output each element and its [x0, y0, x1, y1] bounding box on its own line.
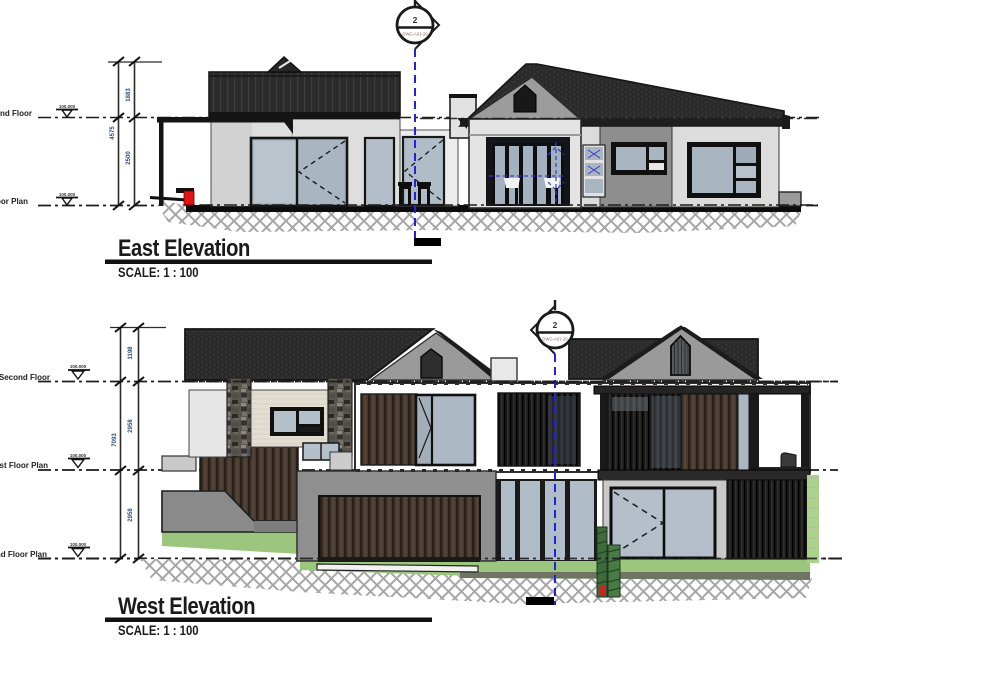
svg-text:1198: 1198 — [128, 346, 134, 360]
svg-text:100.000: 100.000 — [70, 542, 87, 547]
svg-text:4575: 4575 — [110, 126, 116, 140]
svg-text:100.000: 100.000 — [59, 192, 76, 197]
svg-text:SCALE: 1 : 100: SCALE: 1 : 100 — [118, 623, 199, 638]
svg-text:First Floor Plan: First Floor Plan — [0, 197, 28, 206]
svg-text:DWG-A01-20: DWG-A01-20 — [402, 32, 428, 37]
svg-text:West Elevation: West Elevation — [118, 592, 255, 619]
svg-text:East Elevation: East Elevation — [118, 234, 250, 261]
svg-text:1883: 1883 — [126, 88, 132, 102]
svg-text:Ground Floor Plan: Ground Floor Plan — [0, 550, 47, 559]
svg-text:Second Floor: Second Floor — [0, 109, 32, 118]
svg-text:2958: 2958 — [128, 508, 134, 522]
svg-text:2: 2 — [553, 320, 558, 330]
svg-text:2500: 2500 — [126, 151, 132, 165]
svg-text:2958: 2958 — [128, 419, 134, 433]
svg-text:100.000: 100.000 — [70, 364, 87, 369]
svg-text:DWG-A01-20: DWG-A01-20 — [542, 337, 568, 342]
svg-text:02 Second Floor: 02 Second Floor — [0, 373, 50, 382]
svg-text:First Floor Plan: First Floor Plan — [0, 461, 48, 470]
svg-text:100.000: 100.000 — [59, 104, 76, 109]
svg-text:7093: 7093 — [112, 433, 118, 447]
svg-text:2: 2 — [413, 15, 418, 25]
svg-text:100.000: 100.000 — [70, 453, 87, 458]
svg-text:SCALE: 1 : 100: SCALE: 1 : 100 — [118, 265, 199, 280]
